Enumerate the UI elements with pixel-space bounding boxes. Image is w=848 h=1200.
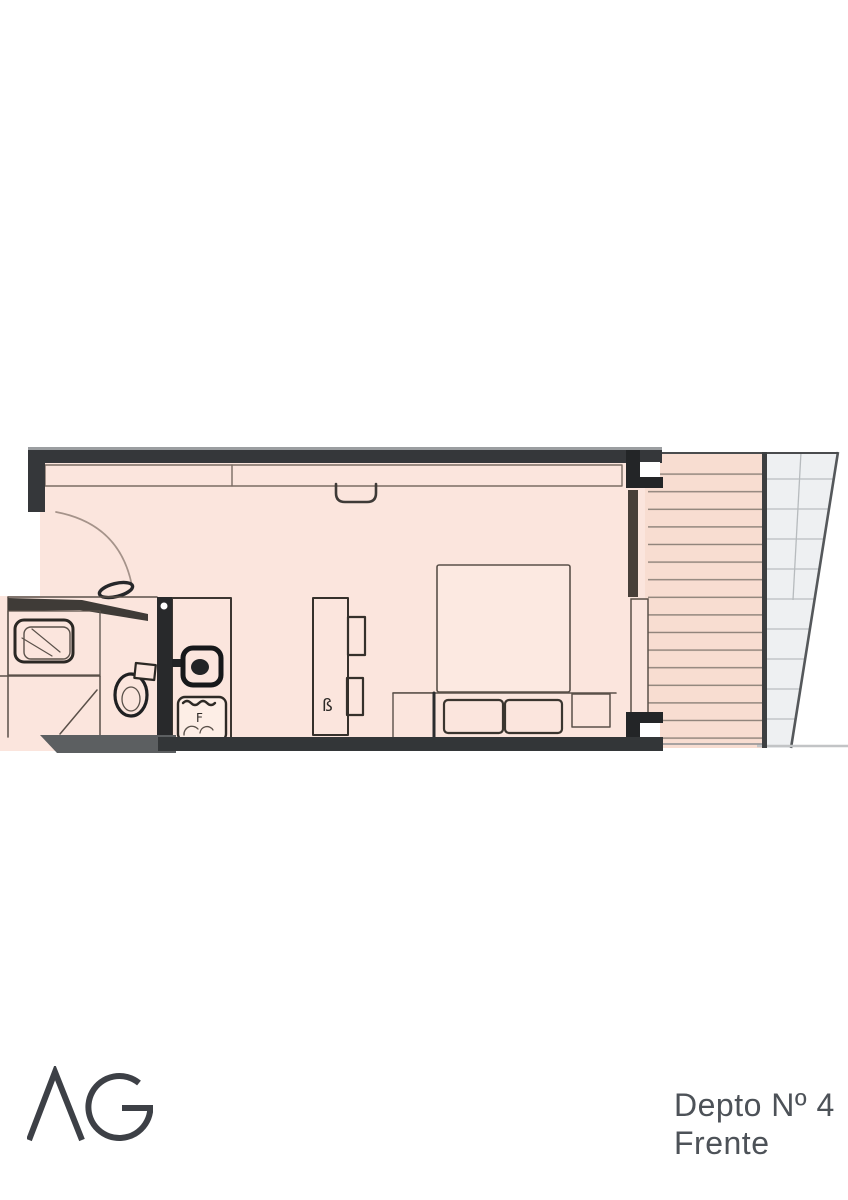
kitchen: F <box>168 598 231 742</box>
floorplan-page: F ß <box>0 0 848 1200</box>
unit-caption-line2: Frente <box>674 1124 835 1162</box>
agency-logo-mark <box>27 1066 167 1146</box>
bathroom-partition-wall <box>157 597 172 749</box>
unit-caption: Depto Nº 4 Frente <box>674 1086 835 1162</box>
bottom-wall <box>158 737 628 751</box>
toilet-tank <box>134 663 155 680</box>
balcony-deck-boards <box>648 458 762 746</box>
glass-area-grid <box>765 452 838 748</box>
stove-glyph: F <box>196 711 203 725</box>
jamb-bottom-notch <box>640 723 660 737</box>
agency-logo: AG <box>27 1066 167 1146</box>
jamb-bottom-horizontal <box>633 712 663 723</box>
kitchen-sink-basin <box>191 659 209 675</box>
top-wall <box>28 450 662 463</box>
partition-pivot-dot <box>161 603 168 610</box>
pillow-left <box>444 700 503 733</box>
jamb-top-notch <box>640 462 660 477</box>
jamb-top-horizontal <box>633 477 663 488</box>
sliding-door-panel <box>631 599 648 714</box>
pillow-right <box>505 700 562 733</box>
window-frame <box>628 490 638 597</box>
bed-mattress <box>437 565 570 692</box>
logo-g-stroke <box>88 1076 150 1138</box>
balcony-rail-wall <box>762 452 767 748</box>
bottom-wall-right <box>626 737 663 751</box>
floor-plan-drawing: F ß <box>0 0 848 1200</box>
nightstand-left <box>393 693 434 738</box>
left-wall-cap <box>28 450 45 512</box>
unit-caption-line1: Depto Nº 4 <box>674 1086 835 1124</box>
floors <box>0 452 765 751</box>
toilet-bowl <box>115 674 147 716</box>
logo-lambda-stroke <box>29 1072 82 1140</box>
desk-glyph: ß <box>322 696 333 716</box>
bottom-slab-left <box>40 735 176 753</box>
